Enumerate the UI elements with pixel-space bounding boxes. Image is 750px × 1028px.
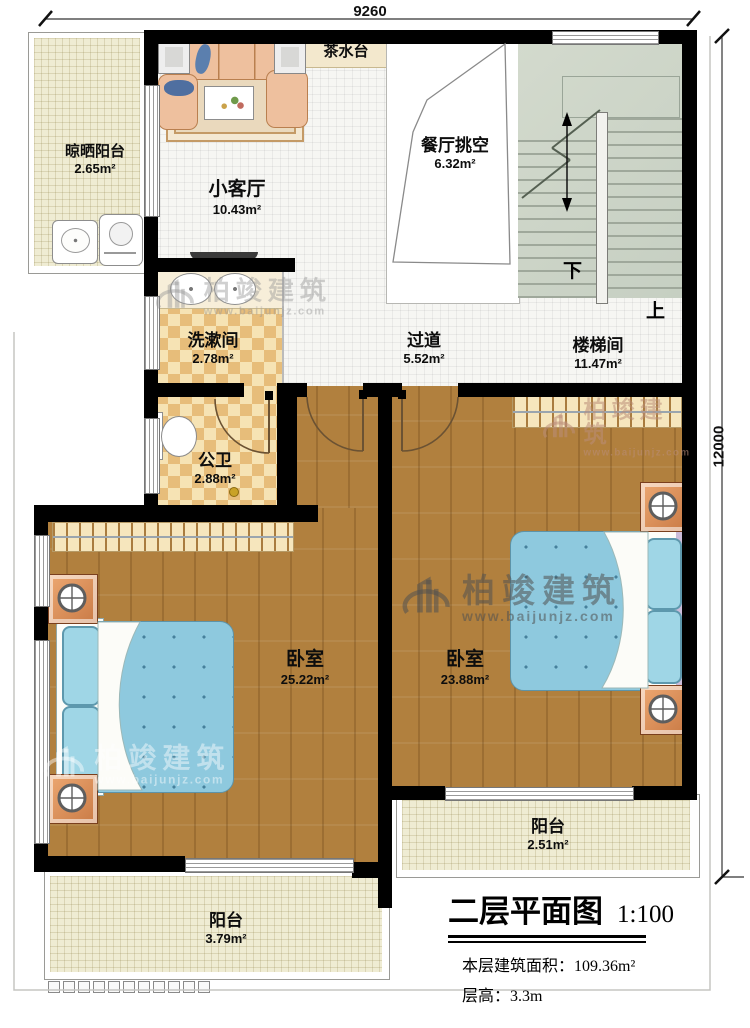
wall: [458, 383, 682, 397]
floor-height-note: 层高：3.3m: [462, 982, 708, 1006]
wall: [682, 30, 697, 796]
room-label-hallway: 过道5.52m²: [403, 331, 444, 367]
wall: [277, 392, 297, 505]
stair-flight-right: [600, 118, 682, 298]
pillow: [62, 626, 100, 706]
washroom-edge-line: [282, 266, 284, 392]
room-label-bedroom-right: 卧室23.88m²: [441, 649, 489, 687]
side-table-right: [274, 40, 306, 74]
stair-up-label: 上: [646, 296, 665, 323]
side-table-left: [158, 40, 190, 74]
dining-void: [386, 40, 520, 304]
wall: [144, 383, 244, 397]
wall: [378, 386, 392, 908]
window: [144, 418, 160, 494]
nightstand: [640, 482, 688, 532]
room-label-balcony-right: 阳台2.51m²: [527, 817, 568, 853]
bed: [98, 621, 234, 793]
bed: [510, 531, 648, 691]
room-label-balcony-left: 阳台3.79m²: [205, 911, 246, 947]
toilet-bowl: [161, 416, 197, 457]
wall: [144, 258, 295, 272]
stair-down-label: 下: [563, 256, 582, 283]
wardrobe: [52, 522, 294, 552]
washing-machine-panel: [104, 252, 136, 254]
balcony-railing-dots: [48, 981, 210, 993]
stair-railing: [596, 112, 608, 304]
wall: [34, 856, 185, 872]
pillow: [646, 610, 682, 684]
nightstand: [48, 774, 98, 824]
wall: [352, 862, 392, 878]
sofa-armchair-right: [266, 70, 308, 128]
room-label-tea-counter: 茶水台: [323, 43, 368, 61]
window: [552, 31, 659, 45]
stair-flight-left: [518, 140, 600, 298]
sliding-door: [144, 85, 160, 217]
plan-title: 二层平面图: [448, 886, 603, 931]
washroom-sink: [170, 273, 212, 305]
room-label-drying-balcony: 晾晒阳台2.65m²: [65, 143, 125, 177]
floor-bedroom-left-entry: [284, 386, 392, 508]
sliding-door: [445, 787, 634, 801]
room-label-stairwell: 楼梯间11.47m²: [573, 336, 624, 372]
wardrobe: [512, 396, 682, 428]
room-label-washroom: 洗漱间2.78m²: [188, 331, 239, 367]
door-knob: [229, 487, 239, 497]
coffee-table: [204, 86, 254, 120]
stair-landing-outline: [562, 76, 680, 118]
laundry-sink-basin: [61, 228, 90, 253]
nightstand: [640, 685, 688, 735]
wall: [632, 786, 697, 800]
window: [144, 296, 160, 370]
room-label-toilet: 公卫2.88m²: [194, 451, 235, 487]
room-label-dining-void: 餐厅挑空6.32m²: [421, 136, 489, 172]
window: [34, 535, 50, 607]
floor-area-note: 本层建筑面积：109.36m²: [462, 952, 708, 976]
window: [34, 640, 50, 844]
title-block: 二层平面图 1:100 本层建筑面积：109.36m² 层高：3.3m: [448, 886, 708, 1006]
washing-machine-drum: [109, 222, 133, 246]
wall: [34, 505, 318, 522]
plan-scale: 1:100: [617, 901, 674, 929]
room-label-bedroom-left: 卧室25.22m²: [281, 649, 329, 687]
room-label-living: 小客厅10.43m²: [208, 179, 265, 217]
dimension-top: 9260: [340, 3, 400, 20]
title-underline: [448, 941, 646, 943]
washroom-sink: [214, 273, 256, 305]
nightstand: [48, 574, 98, 624]
floor-plan: 下 上: [0, 0, 750, 1028]
dimension-right: 12000: [711, 416, 728, 478]
sliding-door: [185, 858, 354, 873]
title-underline: [448, 935, 646, 938]
person-sitting: [164, 80, 194, 96]
wall: [392, 786, 445, 800]
pillow: [646, 538, 682, 610]
